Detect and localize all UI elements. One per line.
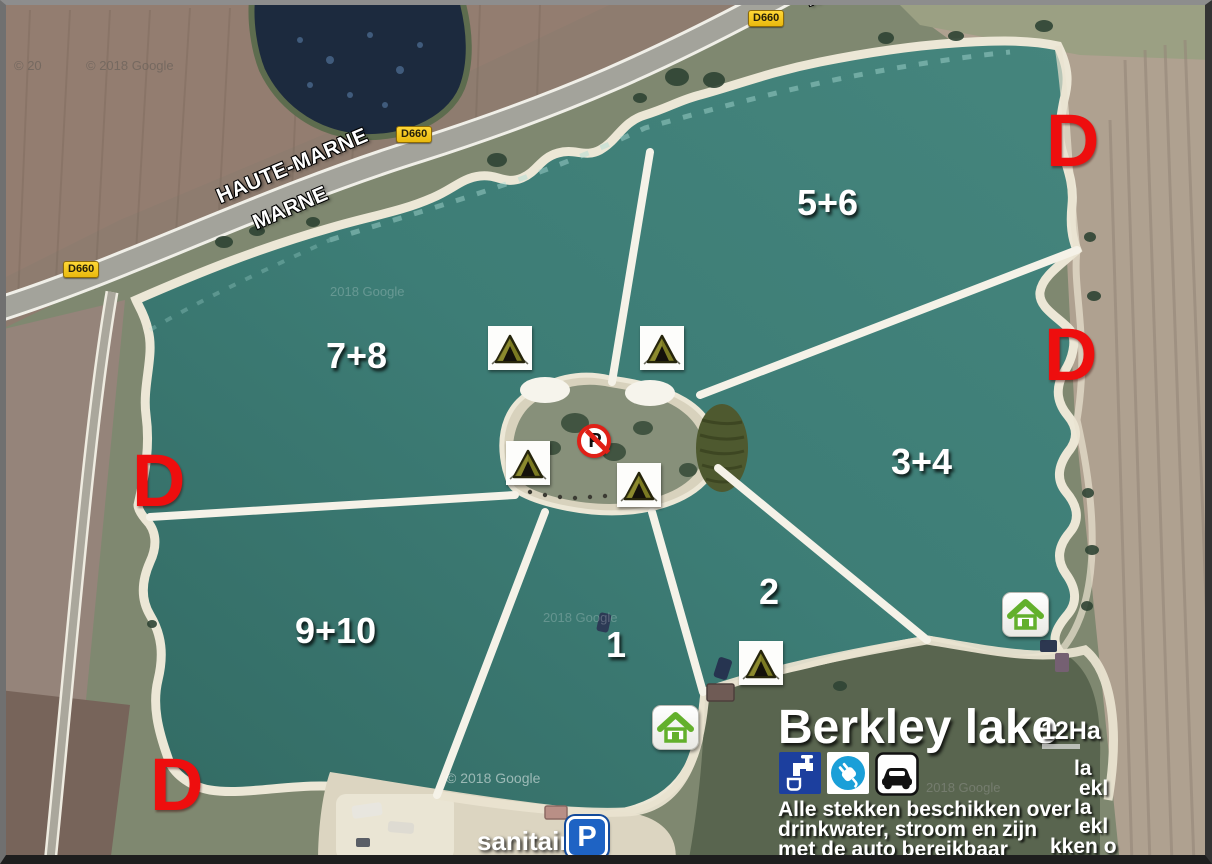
- clipped-text-artifact: [1042, 744, 1080, 749]
- tent-icon: [506, 441, 550, 485]
- google-watermark: © 20: [14, 58, 42, 73]
- no-parking-icon: P: [577, 424, 611, 458]
- tent-icon: [640, 326, 684, 370]
- sanitair-label: sanitair: [477, 826, 570, 857]
- clipped-text-fragment: la: [1074, 758, 1092, 779]
- access-point-d-marker: D: [150, 748, 203, 822]
- swim-label-1: 1: [606, 627, 626, 663]
- car-icon: [875, 752, 919, 796]
- legend-amenity-icons: [779, 752, 919, 796]
- access-point-d-marker: D: [1044, 318, 1097, 392]
- lake-area: 12Ha: [1041, 719, 1101, 744]
- road-badge-d660: D660: [63, 261, 99, 278]
- swim-label-2: 2: [759, 574, 779, 610]
- clipped-text-fragment: ekl: [1079, 816, 1108, 837]
- parking-symbol: P: [577, 823, 596, 852]
- swim-label-7-8: 7+8: [326, 338, 387, 374]
- road-badge-d660: D660: [748, 10, 784, 27]
- swim-label-5-6: 5+6: [797, 185, 858, 221]
- google-watermark: © 2018 Google: [86, 58, 174, 73]
- road-badge-d660: D660: [396, 126, 432, 143]
- power-plug-icon: [827, 752, 869, 794]
- map-frame: © 20 © 2018 Google 2018 Google 2018 Goog…: [0, 0, 1212, 864]
- tent-icon: [488, 326, 532, 370]
- clipped-text-fragment: kken o: [1050, 836, 1117, 857]
- parking-icon: P: [566, 816, 608, 858]
- house-icon: [652, 705, 699, 750]
- legend-line-2: drinkwater, stroom en zijn: [778, 820, 1071, 840]
- google-watermark: 2018 Google: [543, 610, 617, 625]
- google-watermark: © 2018 Google: [446, 770, 540, 786]
- access-point-d-marker: D: [132, 444, 185, 518]
- swim-label-3-4: 3+4: [891, 444, 952, 480]
- tent-icon: [617, 463, 661, 507]
- google-watermark: 2018 Google: [330, 284, 404, 299]
- house-icon: [1002, 592, 1049, 637]
- access-point-d-marker: D: [1046, 104, 1099, 178]
- legend-line-1: Alle stekken beschikken over: [778, 800, 1071, 820]
- tent-icon: [739, 641, 783, 685]
- legend-line-3: met de auto bereikbaar: [778, 840, 1071, 860]
- lake-title: Berkley lake: [778, 704, 1058, 752]
- map-surface: © 20 © 2018 Google 2018 Google 2018 Goog…: [0, 0, 1212, 864]
- swim-label-9-10: 9+10: [295, 613, 376, 649]
- water-tap-icon: [779, 752, 821, 794]
